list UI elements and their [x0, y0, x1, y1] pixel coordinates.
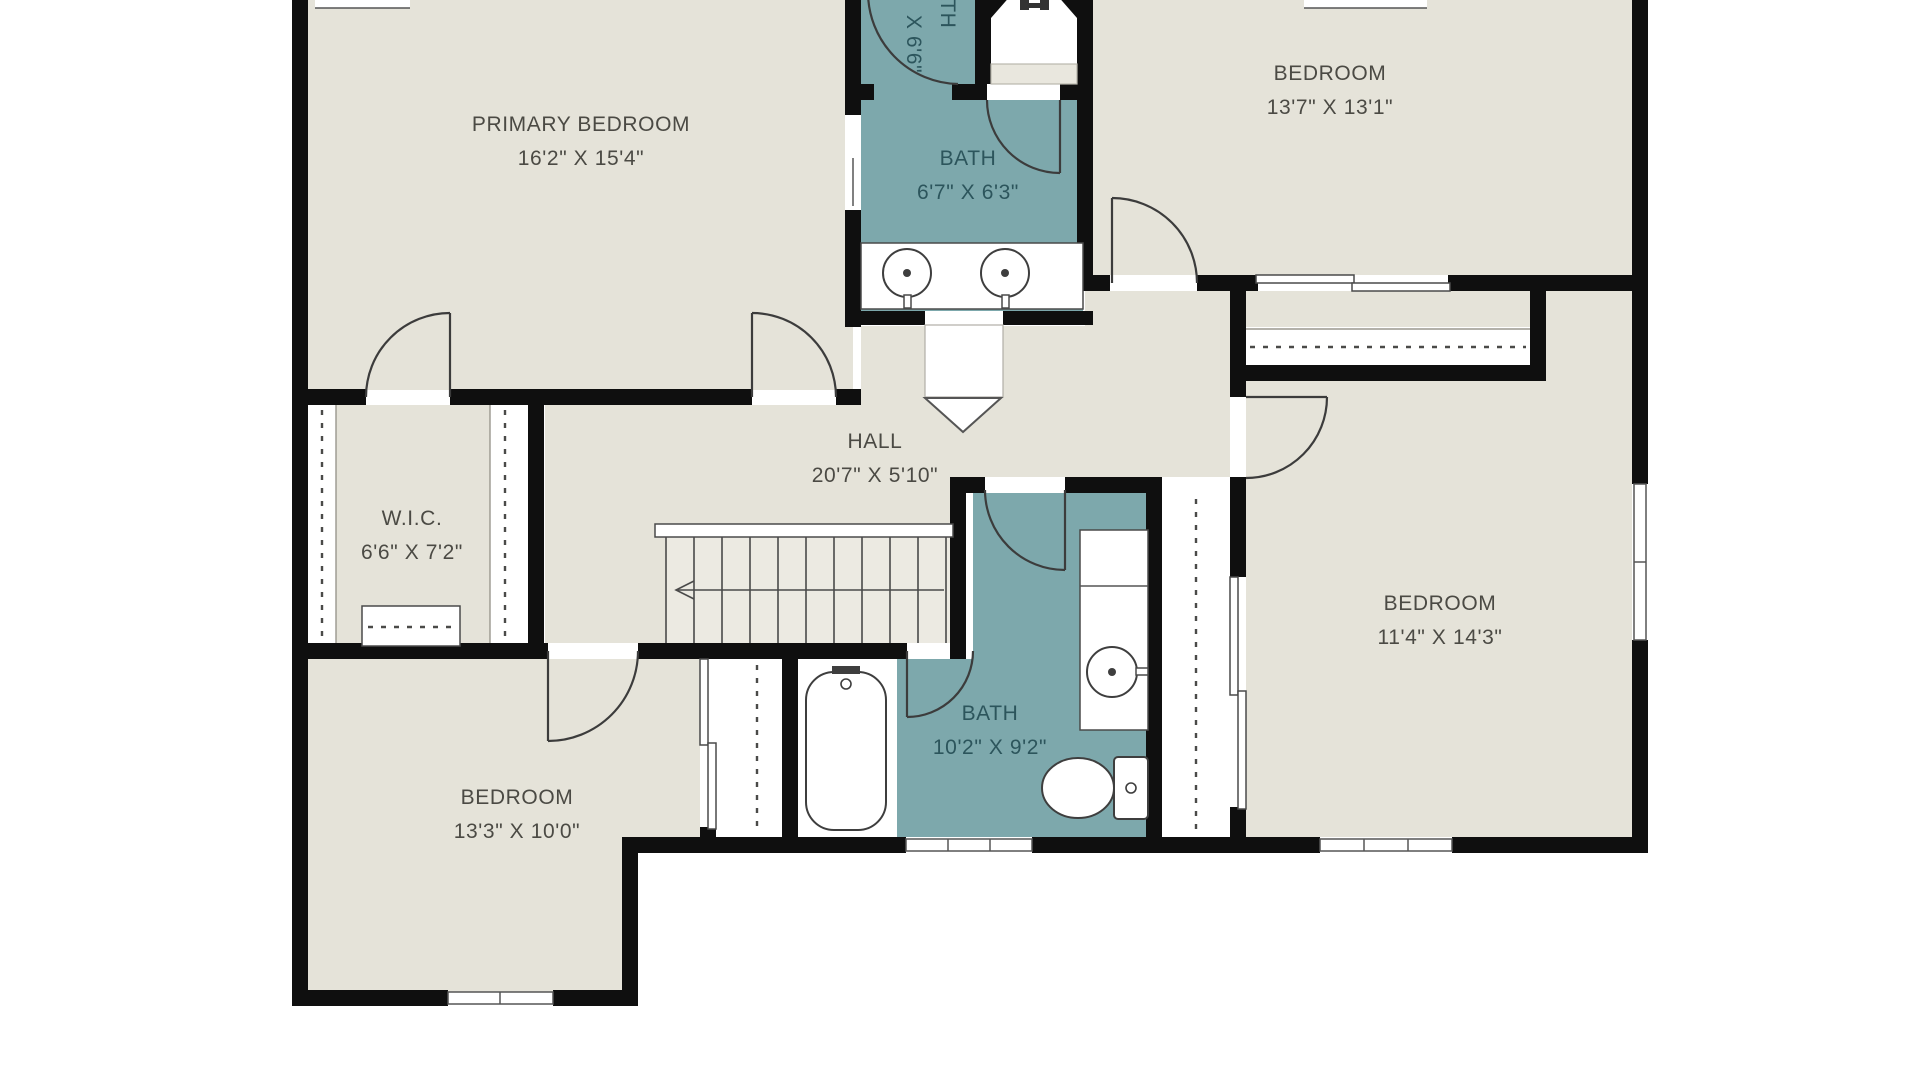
window	[1320, 839, 1452, 851]
window	[1304, 0, 1427, 8]
floor-plan: PRIMARY BEDROOM 16'2" X 15'4" BATH X 6'6…	[0, 0, 1920, 1080]
room-label: BATH	[940, 147, 997, 170]
bathtub-icon	[806, 672, 886, 830]
room-dims: 13'7" X 13'1"	[1267, 96, 1393, 119]
stair-handrail	[655, 524, 953, 537]
room-label: BEDROOM	[461, 786, 574, 809]
toilet-icon	[1042, 758, 1114, 818]
room-dims: 6'7" X 6'3"	[917, 181, 1019, 204]
window	[906, 839, 1032, 851]
bypass-door-panel	[1230, 577, 1238, 695]
cased-opening	[925, 311, 1003, 325]
room-dims: 13'3" X 10'0"	[454, 820, 580, 843]
bypass-door-panel	[700, 659, 708, 745]
room-label: BEDROOM	[1384, 592, 1497, 615]
room-label: BATH	[962, 702, 1019, 725]
primary-bedroom-floor	[300, 0, 853, 390]
room-label: W.I.C.	[382, 507, 443, 530]
bypass-door-panel	[708, 743, 716, 829]
room-label: BATH	[936, 0, 959, 28]
room-label: HALL	[848, 430, 903, 453]
bypass-door-panel	[1256, 275, 1354, 283]
room-dims: 16'2" X 15'4"	[518, 147, 644, 170]
room-dims: 10'2" X 9'2"	[933, 736, 1047, 759]
room-dims: 20'7" X 5'10"	[812, 464, 938, 487]
room-dims: 6'6" X 7'2"	[361, 541, 463, 564]
window	[315, 0, 410, 8]
closet-bl-floor	[716, 659, 782, 837]
bypass-door-panel	[1352, 283, 1450, 291]
stairs	[655, 524, 953, 643]
linen-shelf	[991, 64, 1077, 84]
room-dims: X 6'6"	[902, 15, 925, 73]
room-label: PRIMARY BEDROOM	[472, 113, 690, 136]
room-label: BEDROOM	[1274, 62, 1387, 85]
room-dims: 11'4" X 14'3"	[1378, 626, 1503, 649]
vanity	[1080, 530, 1148, 730]
bedroom-top-right-floor	[1085, 0, 1640, 275]
bypass-door-panel	[1238, 691, 1246, 809]
